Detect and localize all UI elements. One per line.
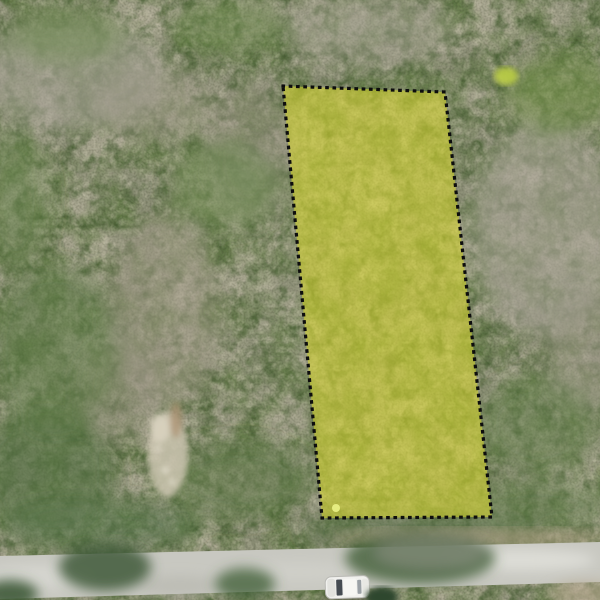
- green-patch: [0, 500, 200, 550]
- vehicle-hood: [327, 579, 336, 597]
- dry-patch: [90, 70, 210, 140]
- vehicle-roof: [343, 578, 357, 595]
- vehicle-windshield: [336, 579, 343, 595]
- rock-clearing-ground: [150, 413, 170, 443]
- vehicle-trunk: [362, 578, 369, 594]
- aerial-photo-canvas: [0, 0, 600, 600]
- tree-canopy: [59, 543, 151, 591]
- green-patch: [170, 440, 310, 520]
- flowering-bush: [494, 67, 518, 85]
- bare-branches: [375, 536, 485, 568]
- rock: [162, 467, 168, 473]
- road-dark-patch: [140, 576, 220, 596]
- rock: [156, 446, 161, 451]
- green-patch: [5, 5, 125, 65]
- green-patch: [170, 140, 280, 230]
- rock: [170, 480, 175, 485]
- parcel-corner-marker-dot: [332, 504, 340, 512]
- vehicle-rear-window: [357, 580, 361, 594]
- aerial-photo: [0, 0, 600, 600]
- tree-canopy: [215, 568, 275, 600]
- dirt-streak: [170, 402, 182, 438]
- green-patch: [480, 375, 600, 475]
- green-patch: [175, 0, 285, 50]
